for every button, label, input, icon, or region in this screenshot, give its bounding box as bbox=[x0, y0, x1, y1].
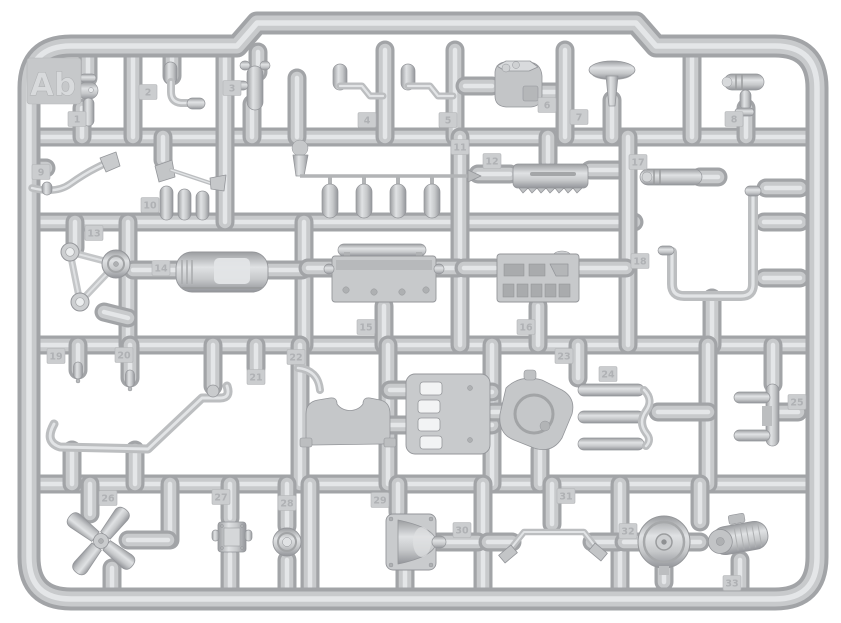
part-17-capsulepart bbox=[640, 169, 702, 185]
svg-text:3: 3 bbox=[229, 83, 236, 94]
part-number-tag-10: 10 bbox=[141, 198, 159, 213]
svg-text:11: 11 bbox=[453, 142, 466, 153]
part-16-panel bbox=[497, 251, 579, 302]
part-number-tag-13: 13 bbox=[85, 226, 103, 241]
svg-text:29: 29 bbox=[373, 495, 386, 506]
part-number-tag-22: 22 bbox=[287, 350, 305, 365]
svg-text:19: 19 bbox=[49, 351, 62, 362]
svg-text:7: 7 bbox=[576, 112, 583, 123]
part-number-tag-9: 9 bbox=[32, 165, 50, 180]
svg-text:21: 21 bbox=[249, 372, 262, 383]
svg-text:16: 16 bbox=[519, 322, 533, 333]
svg-text:25: 25 bbox=[790, 397, 803, 408]
svg-text:23: 23 bbox=[557, 351, 570, 362]
part-24-candelabra bbox=[578, 384, 650, 450]
part-number-tag-21: 21 bbox=[247, 370, 265, 385]
part-number-tag-8: 8 bbox=[725, 112, 743, 127]
part-number-tag-6: 6 bbox=[538, 98, 556, 113]
part-number-tag-19: 19 bbox=[47, 349, 65, 364]
part-number-tag-30: 30 bbox=[453, 523, 471, 538]
svg-text:22: 22 bbox=[289, 352, 302, 363]
part-number-tag-4: 4 bbox=[358, 113, 376, 128]
part-number-tag-32: 32 bbox=[619, 524, 637, 539]
part-number-tag-1: 1 bbox=[68, 112, 86, 127]
part-number-tag-14: 14 bbox=[152, 261, 170, 276]
part-number-tag-18: 18 bbox=[631, 254, 649, 269]
part-number-tag-16: 16 bbox=[517, 320, 535, 335]
part-number-tag-11: 11 bbox=[451, 140, 469, 155]
svg-text:18: 18 bbox=[633, 256, 647, 267]
part-number-tag-3: 3 bbox=[223, 81, 241, 96]
svg-text:28: 28 bbox=[280, 498, 294, 509]
svg-text:33: 33 bbox=[725, 578, 738, 589]
svg-text:4: 4 bbox=[364, 115, 371, 126]
sprue-letter-label: Ab bbox=[27, 58, 81, 104]
svg-text:14: 14 bbox=[154, 263, 168, 274]
part-number-tag-5: 5 bbox=[439, 113, 457, 128]
part-number-tag-17: 17 bbox=[629, 155, 647, 170]
svg-text:30: 30 bbox=[455, 525, 469, 536]
part-14-tank bbox=[176, 252, 268, 292]
part-number-tag-25: 25 bbox=[788, 395, 806, 410]
svg-text:12: 12 bbox=[485, 156, 498, 167]
part-28-smallpulley bbox=[273, 528, 301, 556]
svg-text:6: 6 bbox=[544, 100, 551, 111]
part-number-tag-29: 29 bbox=[371, 493, 389, 508]
svg-text:Ab: Ab bbox=[30, 67, 76, 103]
svg-text:20: 20 bbox=[117, 350, 131, 361]
part-number-tag-33: 33 bbox=[723, 576, 741, 591]
svg-text:17: 17 bbox=[631, 157, 644, 168]
sprue-illustration: 1234567891011121314151617181920212223242… bbox=[0, 0, 841, 623]
part-number-tag-31: 31 bbox=[557, 489, 575, 504]
svg-text:32: 32 bbox=[621, 526, 634, 537]
svg-text:24: 24 bbox=[601, 369, 615, 380]
part-6-pumpbox bbox=[495, 61, 542, 107]
svg-text:31: 31 bbox=[559, 491, 572, 502]
svg-text:9: 9 bbox=[38, 167, 45, 178]
svg-text:5: 5 bbox=[445, 115, 452, 126]
svg-text:1: 1 bbox=[74, 114, 81, 125]
part-number-tag-2: 2 bbox=[139, 85, 157, 100]
part-number-tag-12: 12 bbox=[483, 154, 501, 169]
part-number-tag-28: 28 bbox=[278, 496, 296, 511]
part-27-block bbox=[212, 522, 252, 552]
svg-text:10: 10 bbox=[143, 200, 157, 211]
svg-text:13: 13 bbox=[87, 228, 100, 239]
part-number-tag-27: 27 bbox=[212, 490, 230, 505]
svg-text:26: 26 bbox=[101, 493, 115, 504]
svg-text:15: 15 bbox=[359, 322, 372, 333]
part-number-tag-23: 23 bbox=[555, 349, 573, 364]
part-ladder bbox=[406, 374, 490, 454]
part-number-tag-7: 7 bbox=[570, 110, 588, 125]
svg-text:2: 2 bbox=[145, 87, 152, 98]
svg-text:27: 27 bbox=[214, 492, 227, 503]
sprue-photo: 1234567891011121314151617181920212223242… bbox=[0, 0, 841, 623]
part-number-tag-24: 24 bbox=[599, 367, 617, 382]
part-number-tag-15: 15 bbox=[357, 320, 375, 335]
svg-text:8: 8 bbox=[731, 114, 738, 125]
part-number-tag-26: 26 bbox=[99, 491, 117, 506]
part-number-tag-20: 20 bbox=[115, 348, 133, 363]
part-12-rack bbox=[513, 164, 588, 193]
